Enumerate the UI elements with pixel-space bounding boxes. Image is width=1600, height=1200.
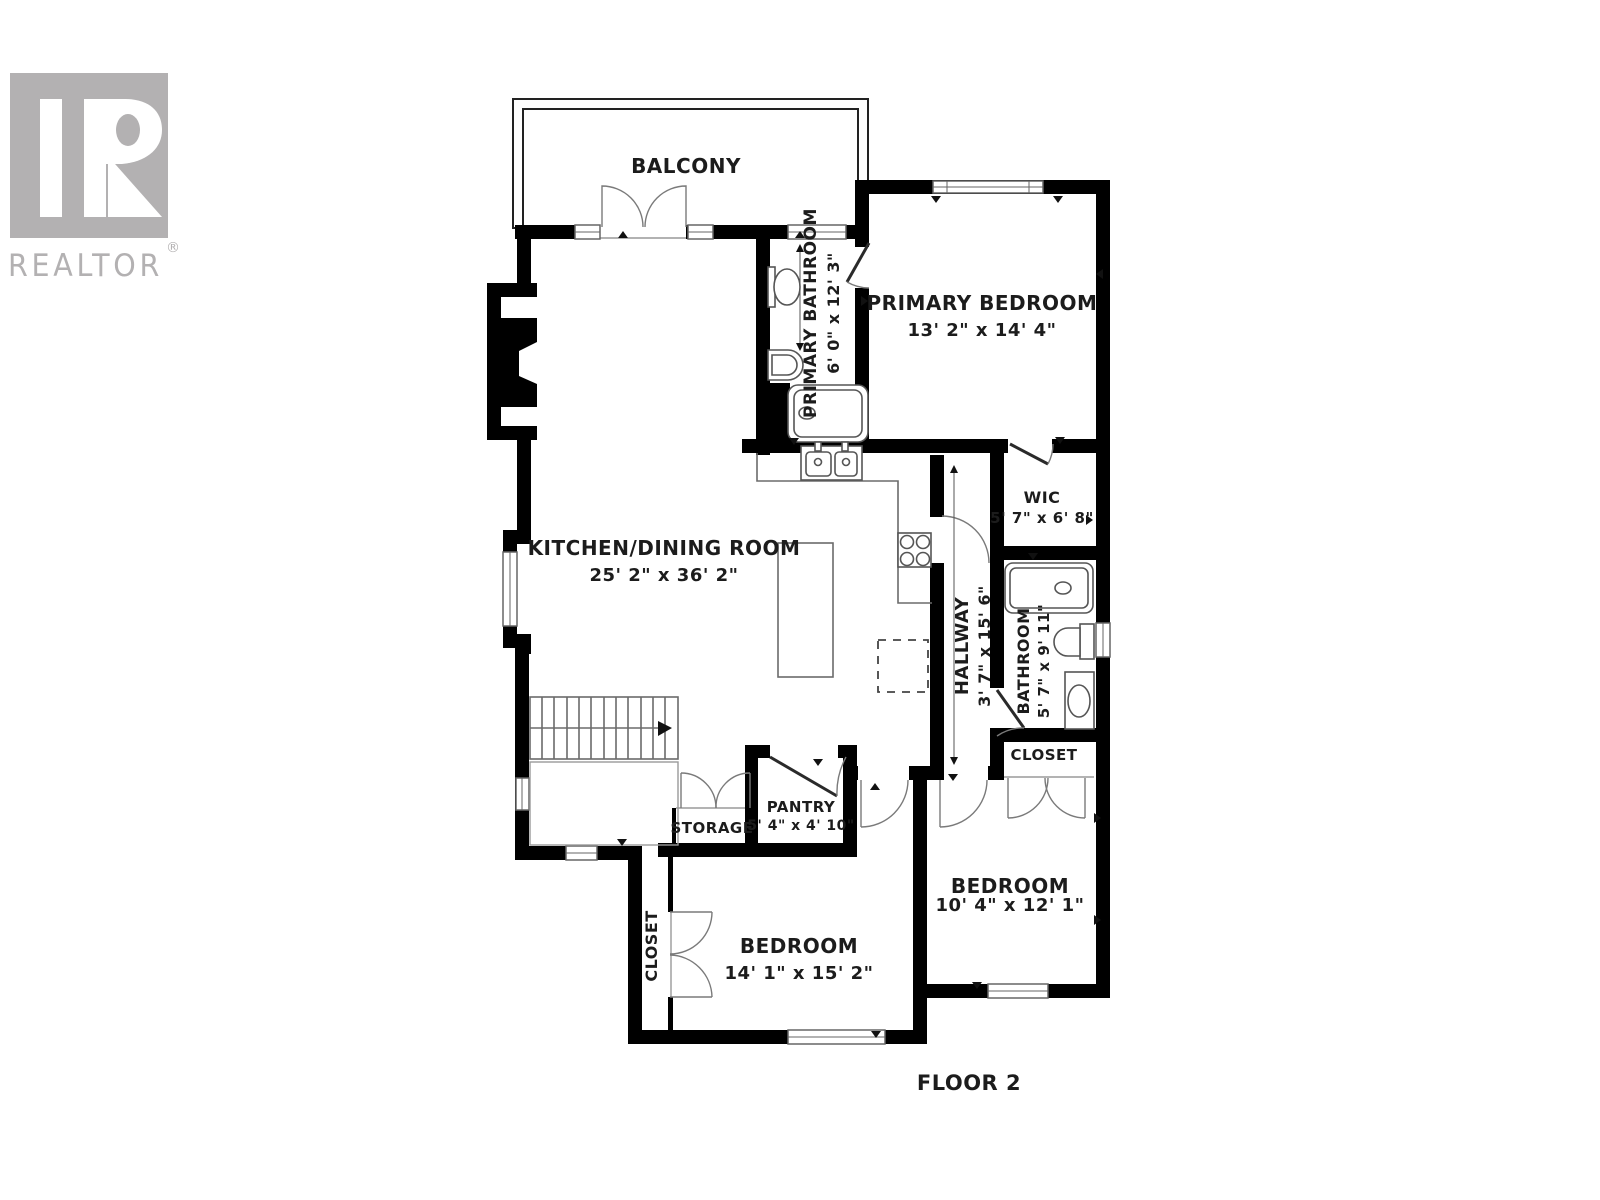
room-label-hall-closet: CLOSET (1010, 746, 1077, 764)
wall (668, 997, 673, 1030)
realtor-logo-r-stem (84, 99, 106, 217)
window (1096, 623, 1110, 657)
double-door-swing (1004, 777, 1094, 818)
door-swing (847, 243, 869, 288)
wall (913, 780, 927, 1044)
room-dims-bedroom-left: 14' 1" x 15' 2" (724, 963, 873, 984)
vanity-sink-icon (1065, 672, 1094, 729)
room-label-bedroom-left: BEDROOM (740, 934, 858, 958)
wall (487, 426, 537, 440)
wall (487, 283, 537, 297)
double-door-swing (676, 773, 750, 808)
window (575, 225, 600, 239)
wall (909, 766, 938, 780)
room-label-primary-bedroom: PRIMARY BEDROOM (867, 291, 1098, 315)
room-dims-bathroom: 5' 7" x 9' 11" (1035, 604, 1053, 719)
wall (1096, 180, 1110, 998)
door-swing (942, 516, 989, 563)
wall (658, 843, 857, 857)
wall (487, 283, 501, 440)
room-dims-bedroom-right: 10' 4" x 12' 1" (935, 895, 1084, 916)
wall (745, 745, 770, 758)
room-dims-pantry: 5' 4" x 4' 10" (747, 818, 854, 834)
door-swing (770, 757, 846, 796)
dimension-arrow (1053, 196, 1063, 203)
wall (517, 440, 531, 544)
room-label-pantry: PANTRY (767, 798, 836, 816)
floor-plan-canvas: REALTOR ® (0, 0, 1600, 1200)
realtor-wordmark: REALTOR (8, 248, 163, 284)
door-swing (1010, 444, 1053, 464)
room-dims-hallway: 3' 7" x 15' 6" (975, 585, 994, 707)
staircase (530, 697, 678, 845)
floor-plan-page: REALTOR ® (0, 0, 1600, 1200)
wall (628, 848, 642, 1044)
sink-icon (768, 350, 803, 380)
wall (668, 848, 673, 912)
wall (930, 455, 944, 517)
window (516, 778, 529, 810)
bathtub-icon (788, 385, 868, 442)
window (566, 846, 597, 860)
wall (515, 648, 529, 860)
stair-landing (530, 762, 678, 845)
room-label-primary-bathroom: PRIMARY BATHROOM (801, 208, 821, 418)
room-label-wic: WIC (1024, 488, 1061, 507)
kitchen-island (778, 543, 833, 677)
double-door-swing (670, 912, 712, 997)
door-opening (600, 225, 686, 239)
floor-label: FLOOR 2 (917, 1071, 1021, 1095)
door-swing (940, 780, 987, 827)
room-label-balcony: BALCONY (631, 154, 741, 178)
wall (930, 563, 944, 780)
room-label-kitchen-dining: KITCHEN/DINING ROOM (528, 536, 801, 560)
toilet-icon (768, 267, 800, 307)
french-door-swing (602, 186, 686, 227)
registered-trademark-icon: ® (166, 240, 180, 256)
dimension-arrow (870, 783, 880, 790)
realtor-logo: REALTOR ® (8, 73, 180, 284)
toilet-icon (1054, 624, 1094, 659)
stove-icon (898, 533, 931, 567)
dimension-arrow (931, 196, 941, 203)
dashed-area (878, 640, 928, 692)
room-dims-primary-bedroom: 13' 2" x 14' 4" (907, 320, 1056, 341)
wall (745, 745, 758, 857)
kitchen-sink-icon (801, 442, 862, 480)
dimension-arrow (813, 759, 823, 766)
room-label-bedroom-closet: CLOSET (642, 910, 661, 981)
window (688, 225, 713, 239)
room-labels: BALCONY PRIMARY BATHROOM 6' 0" x 12' 3" … (528, 154, 1098, 1095)
wall (869, 439, 1008, 453)
realtor-logo-r-counter (116, 114, 140, 146)
wall (515, 634, 531, 654)
room-label-hallway: HALLWAY (952, 596, 973, 695)
window (503, 552, 517, 626)
room-label-storage: STORAGE (670, 819, 753, 837)
wall (990, 546, 1110, 560)
room-dims-primary-bathroom: 6' 0" x 12' 3" (824, 252, 843, 374)
wall (843, 745, 857, 857)
room-dims-wic: 5' 7" x 6' 8" (990, 509, 1094, 527)
wall (990, 453, 1004, 546)
room-label-bathroom: BATHROOM (1014, 607, 1033, 714)
dimension-arrow (948, 774, 958, 781)
window (933, 181, 1043, 193)
window (988, 984, 1048, 998)
wall (855, 180, 869, 239)
window (788, 1030, 885, 1044)
wall (988, 766, 1004, 780)
wall (756, 383, 790, 443)
room-dims-kitchen-dining: 25' 2" x 36' 2" (589, 565, 738, 586)
door-swing (861, 780, 908, 827)
realtor-logo-bar (40, 99, 62, 217)
